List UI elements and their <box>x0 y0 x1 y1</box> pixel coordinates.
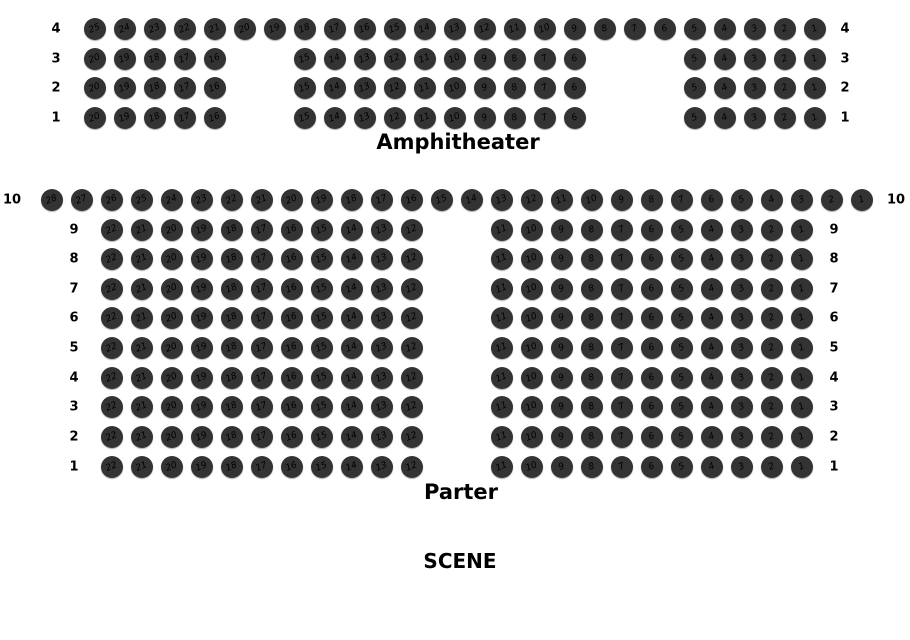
seat[interactable]: 4 <box>701 396 723 418</box>
seat[interactable]: 1 <box>804 77 826 99</box>
seat[interactable]: 3 <box>744 77 766 99</box>
seat[interactable]: 13 <box>354 48 376 70</box>
seat[interactable]: 4 <box>701 337 723 359</box>
seat[interactable]: 22 <box>101 219 123 241</box>
seat[interactable]: 20 <box>161 426 183 448</box>
seat[interactable]: 8 <box>581 367 603 389</box>
seat[interactable]: 7 <box>611 337 633 359</box>
seat[interactable]: 14 <box>341 456 363 478</box>
seat[interactable]: 14 <box>341 307 363 329</box>
seat[interactable]: 15 <box>311 307 333 329</box>
seat[interactable]: 4 <box>701 219 723 241</box>
seat[interactable]: 21 <box>131 367 153 389</box>
seat[interactable]: 6 <box>641 337 663 359</box>
seat[interactable]: 6 <box>641 278 663 300</box>
seat[interactable]: 17 <box>174 48 196 70</box>
seat[interactable]: 21 <box>251 189 273 211</box>
seat[interactable]: 17 <box>251 396 273 418</box>
seat[interactable]: 3 <box>744 18 766 40</box>
seat[interactable]: 13 <box>354 77 376 99</box>
seat[interactable]: 3 <box>731 426 753 448</box>
seat[interactable]: 20 <box>84 48 106 70</box>
seat[interactable]: 6 <box>564 107 586 129</box>
seat[interactable]: 9 <box>564 18 586 40</box>
seat[interactable]: 17 <box>251 456 273 478</box>
seat[interactable]: 22 <box>101 426 123 448</box>
seat[interactable]: 17 <box>251 219 273 241</box>
seat[interactable]: 10 <box>444 48 466 70</box>
seat[interactable]: 10 <box>521 278 543 300</box>
seat[interactable]: 1 <box>791 219 813 241</box>
seat[interactable]: 10 <box>444 107 466 129</box>
seat[interactable]: 7 <box>611 426 633 448</box>
seat[interactable]: 4 <box>701 248 723 270</box>
seat[interactable]: 21 <box>131 456 153 478</box>
seat[interactable]: 16 <box>281 219 303 241</box>
seat[interactable]: 11 <box>491 248 513 270</box>
seat[interactable]: 19 <box>191 248 213 270</box>
seat[interactable]: 16 <box>204 77 226 99</box>
seat[interactable]: 1 <box>791 396 813 418</box>
seat[interactable]: 24 <box>161 189 183 211</box>
seat[interactable]: 1 <box>791 278 813 300</box>
seat[interactable]: 8 <box>581 248 603 270</box>
seat[interactable]: 18 <box>221 248 243 270</box>
seat[interactable]: 4 <box>761 189 783 211</box>
seat[interactable]: 12 <box>384 107 406 129</box>
seat[interactable]: 10 <box>521 367 543 389</box>
seat[interactable]: 22 <box>101 456 123 478</box>
seat[interactable]: 11 <box>414 107 436 129</box>
seat[interactable]: 12 <box>401 219 423 241</box>
seat[interactable]: 20 <box>161 337 183 359</box>
seat[interactable]: 17 <box>371 189 393 211</box>
seat[interactable]: 16 <box>281 396 303 418</box>
seat[interactable]: 8 <box>581 456 603 478</box>
seat[interactable]: 15 <box>384 18 406 40</box>
seat[interactable]: 2 <box>774 48 796 70</box>
seat[interactable]: 9 <box>551 456 573 478</box>
seat[interactable]: 11 <box>491 307 513 329</box>
seat[interactable]: 5 <box>684 48 706 70</box>
seat[interactable]: 18 <box>221 396 243 418</box>
seat[interactable]: 12 <box>401 248 423 270</box>
seat[interactable]: 16 <box>281 456 303 478</box>
seat[interactable]: 3 <box>731 219 753 241</box>
seat[interactable]: 18 <box>221 219 243 241</box>
seat[interactable]: 13 <box>371 278 393 300</box>
seat[interactable]: 20 <box>84 77 106 99</box>
seat[interactable]: 13 <box>491 189 513 211</box>
seat[interactable]: 14 <box>341 248 363 270</box>
seat[interactable]: 2 <box>761 396 783 418</box>
seat[interactable]: 6 <box>641 396 663 418</box>
seat[interactable]: 18 <box>144 107 166 129</box>
seat[interactable]: 1 <box>851 189 873 211</box>
seat[interactable]: 19 <box>191 396 213 418</box>
seat[interactable]: 12 <box>401 278 423 300</box>
seat[interactable]: 14 <box>324 48 346 70</box>
seat[interactable]: 12 <box>384 48 406 70</box>
seat[interactable]: 22 <box>101 278 123 300</box>
seat[interactable]: 2 <box>774 77 796 99</box>
seat[interactable]: 11 <box>491 426 513 448</box>
seat[interactable]: 2 <box>774 18 796 40</box>
seat[interactable]: 7 <box>611 456 633 478</box>
seat[interactable]: 22 <box>174 18 196 40</box>
seat[interactable]: 16 <box>281 337 303 359</box>
seat[interactable]: 18 <box>221 278 243 300</box>
seat[interactable]: 6 <box>701 189 723 211</box>
seat[interactable]: 19 <box>191 337 213 359</box>
seat[interactable]: 17 <box>174 77 196 99</box>
seat[interactable]: 20 <box>161 367 183 389</box>
seat[interactable]: 9 <box>474 48 496 70</box>
seat[interactable]: 12 <box>401 337 423 359</box>
seat[interactable]: 3 <box>731 278 753 300</box>
seat[interactable]: 8 <box>581 278 603 300</box>
seat[interactable]: 15 <box>311 426 333 448</box>
seat[interactable]: 12 <box>401 456 423 478</box>
seat[interactable]: 16 <box>204 48 226 70</box>
seat[interactable]: 19 <box>191 307 213 329</box>
seat[interactable]: 7 <box>611 367 633 389</box>
seat[interactable]: 7 <box>611 219 633 241</box>
seat[interactable]: 15 <box>294 48 316 70</box>
seat[interactable]: 10 <box>521 337 543 359</box>
seat[interactable]: 1 <box>791 307 813 329</box>
seat[interactable]: 19 <box>311 189 333 211</box>
seat[interactable]: 11 <box>414 48 436 70</box>
seat[interactable]: 11 <box>491 367 513 389</box>
seat[interactable]: 5 <box>671 456 693 478</box>
seat[interactable]: 10 <box>521 248 543 270</box>
seat[interactable]: 5 <box>684 77 706 99</box>
seat[interactable]: 23 <box>191 189 213 211</box>
seat[interactable]: 2 <box>761 337 783 359</box>
seat[interactable]: 2 <box>761 367 783 389</box>
seat[interactable]: 6 <box>641 456 663 478</box>
seat[interactable]: 4 <box>701 426 723 448</box>
seat[interactable]: 13 <box>371 307 393 329</box>
seat[interactable]: 3 <box>731 307 753 329</box>
seat[interactable]: 2 <box>774 107 796 129</box>
seat[interactable]: 5 <box>671 248 693 270</box>
seat[interactable]: 3 <box>744 107 766 129</box>
seat[interactable]: 6 <box>641 307 663 329</box>
seat[interactable]: 4 <box>701 278 723 300</box>
seat[interactable]: 13 <box>444 18 466 40</box>
seat[interactable]: 8 <box>594 18 616 40</box>
seat[interactable]: 1 <box>791 337 813 359</box>
seat[interactable]: 15 <box>311 396 333 418</box>
seat[interactable]: 13 <box>371 426 393 448</box>
seat[interactable]: 14 <box>324 107 346 129</box>
seat[interactable]: 7 <box>534 77 556 99</box>
seat[interactable]: 5 <box>684 107 706 129</box>
seat[interactable]: 18 <box>221 307 243 329</box>
seat[interactable]: 21 <box>131 337 153 359</box>
seat[interactable]: 13 <box>371 456 393 478</box>
seat[interactable]: 18 <box>221 367 243 389</box>
seat[interactable]: 15 <box>311 367 333 389</box>
seat[interactable]: 21 <box>131 248 153 270</box>
seat[interactable]: 10 <box>521 307 543 329</box>
seat[interactable]: 14 <box>341 396 363 418</box>
seat[interactable]: 23 <box>144 18 166 40</box>
seat[interactable]: 1 <box>791 367 813 389</box>
seat[interactable]: 1 <box>791 426 813 448</box>
seat[interactable]: 4 <box>714 18 736 40</box>
seat[interactable]: 27 <box>71 189 93 211</box>
seat[interactable]: 9 <box>551 248 573 270</box>
seat[interactable]: 18 <box>221 456 243 478</box>
seat[interactable]: 6 <box>641 426 663 448</box>
seat[interactable]: 2 <box>761 456 783 478</box>
seat[interactable]: 9 <box>474 107 496 129</box>
seat[interactable]: 8 <box>581 337 603 359</box>
seat[interactable]: 3 <box>731 367 753 389</box>
seat[interactable]: 16 <box>281 426 303 448</box>
seat[interactable]: 10 <box>534 18 556 40</box>
seat[interactable]: 6 <box>564 77 586 99</box>
seat[interactable]: 4 <box>701 456 723 478</box>
seat[interactable]: 21 <box>131 396 153 418</box>
seat[interactable]: 21 <box>204 18 226 40</box>
seat[interactable]: 19 <box>191 278 213 300</box>
seat[interactable]: 8 <box>504 77 526 99</box>
seat[interactable]: 20 <box>84 107 106 129</box>
seat[interactable]: 13 <box>371 248 393 270</box>
seat[interactable]: 14 <box>341 278 363 300</box>
seat[interactable]: 11 <box>491 278 513 300</box>
seat[interactable]: 19 <box>191 426 213 448</box>
seat[interactable]: 10 <box>444 77 466 99</box>
seat[interactable]: 11 <box>414 77 436 99</box>
seat[interactable]: 6 <box>641 248 663 270</box>
seat[interactable]: 25 <box>84 18 106 40</box>
seat[interactable]: 14 <box>414 18 436 40</box>
seat[interactable]: 7 <box>671 189 693 211</box>
seat[interactable]: 11 <box>491 219 513 241</box>
seat[interactable]: 9 <box>551 219 573 241</box>
seat[interactable]: 4 <box>701 367 723 389</box>
seat[interactable]: 5 <box>671 307 693 329</box>
seat[interactable]: 6 <box>641 367 663 389</box>
seat[interactable]: 18 <box>221 426 243 448</box>
seat[interactable]: 12 <box>401 396 423 418</box>
seat[interactable]: 8 <box>504 107 526 129</box>
seat[interactable]: 11 <box>491 396 513 418</box>
seat[interactable]: 20 <box>161 219 183 241</box>
seat[interactable]: 22 <box>101 367 123 389</box>
seat[interactable]: 22 <box>221 189 243 211</box>
seat[interactable]: 19 <box>191 367 213 389</box>
seat[interactable]: 20 <box>234 18 256 40</box>
seat[interactable]: 16 <box>354 18 376 40</box>
seat[interactable]: 5 <box>671 219 693 241</box>
seat[interactable]: 17 <box>324 18 346 40</box>
seat[interactable]: 5 <box>684 18 706 40</box>
seat[interactable]: 11 <box>491 337 513 359</box>
seat[interactable]: 5 <box>671 367 693 389</box>
seat[interactable]: 15 <box>311 337 333 359</box>
seat[interactable]: 28 <box>41 189 63 211</box>
seat[interactable]: 21 <box>131 426 153 448</box>
seat[interactable]: 9 <box>551 337 573 359</box>
seat[interactable]: 4 <box>714 77 736 99</box>
seat[interactable]: 9 <box>551 426 573 448</box>
seat[interactable]: 9 <box>474 77 496 99</box>
seat[interactable]: 5 <box>671 396 693 418</box>
seat[interactable]: 4 <box>714 107 736 129</box>
seat[interactable]: 2 <box>821 189 843 211</box>
seat[interactable]: 2 <box>761 219 783 241</box>
seat[interactable]: 1 <box>791 456 813 478</box>
seat[interactable]: 19 <box>114 48 136 70</box>
seat[interactable]: 7 <box>611 307 633 329</box>
seat[interactable]: 24 <box>114 18 136 40</box>
seat[interactable]: 5 <box>671 337 693 359</box>
seat[interactable]: 9 <box>551 307 573 329</box>
seat[interactable]: 7 <box>534 107 556 129</box>
seat[interactable]: 9 <box>551 278 573 300</box>
seat[interactable]: 20 <box>161 278 183 300</box>
seat[interactable]: 13 <box>371 367 393 389</box>
seat[interactable]: 18 <box>294 18 316 40</box>
seat[interactable]: 1 <box>791 248 813 270</box>
seat[interactable]: 18 <box>144 77 166 99</box>
seat[interactable]: 11 <box>491 456 513 478</box>
seat[interactable]: 7 <box>611 248 633 270</box>
seat[interactable]: 18 <box>221 337 243 359</box>
seat[interactable]: 4 <box>701 307 723 329</box>
seat[interactable]: 22 <box>101 396 123 418</box>
seat[interactable]: 12 <box>474 18 496 40</box>
seat[interactable]: 15 <box>311 219 333 241</box>
seat[interactable]: 15 <box>311 456 333 478</box>
seat[interactable]: 1 <box>804 48 826 70</box>
seat[interactable]: 9 <box>611 189 633 211</box>
seat[interactable]: 22 <box>101 307 123 329</box>
seat[interactable]: 10 <box>521 426 543 448</box>
seat[interactable]: 2 <box>761 426 783 448</box>
seat[interactable]: 13 <box>354 107 376 129</box>
seat[interactable]: 8 <box>641 189 663 211</box>
seat[interactable]: 3 <box>731 456 753 478</box>
seat[interactable]: 12 <box>521 189 543 211</box>
seat[interactable]: 21 <box>131 219 153 241</box>
seat[interactable]: 8 <box>581 219 603 241</box>
seat[interactable]: 10 <box>521 396 543 418</box>
seat[interactable]: 9 <box>551 367 573 389</box>
seat[interactable]: 12 <box>401 426 423 448</box>
seat[interactable]: 3 <box>731 396 753 418</box>
seat[interactable]: 2 <box>761 278 783 300</box>
seat[interactable]: 21 <box>131 307 153 329</box>
seat[interactable]: 20 <box>161 248 183 270</box>
seat[interactable]: 17 <box>251 367 273 389</box>
seat[interactable]: 14 <box>341 426 363 448</box>
seat[interactable]: 2 <box>761 307 783 329</box>
seat[interactable]: 6 <box>564 48 586 70</box>
seat[interactable]: 4 <box>714 48 736 70</box>
seat[interactable]: 15 <box>294 77 316 99</box>
seat[interactable]: 3 <box>744 48 766 70</box>
seat[interactable]: 13 <box>371 337 393 359</box>
seat[interactable]: 3 <box>731 337 753 359</box>
seat[interactable]: 1 <box>804 107 826 129</box>
seat[interactable]: 8 <box>581 426 603 448</box>
seat[interactable]: 16 <box>281 367 303 389</box>
seat[interactable]: 10 <box>581 189 603 211</box>
seat[interactable]: 17 <box>251 248 273 270</box>
seat[interactable]: 22 <box>101 337 123 359</box>
seat[interactable]: 14 <box>341 219 363 241</box>
seat[interactable]: 12 <box>384 77 406 99</box>
seat[interactable]: 19 <box>191 456 213 478</box>
seat[interactable]: 6 <box>654 18 676 40</box>
seat[interactable]: 12 <box>401 367 423 389</box>
seat[interactable]: 17 <box>174 107 196 129</box>
seat[interactable]: 19 <box>114 77 136 99</box>
seat[interactable]: 8 <box>581 307 603 329</box>
seat[interactable]: 16 <box>204 107 226 129</box>
seat[interactable]: 6 <box>641 219 663 241</box>
seat[interactable]: 16 <box>401 189 423 211</box>
seat[interactable]: 8 <box>504 48 526 70</box>
seat[interactable]: 22 <box>101 248 123 270</box>
seat[interactable]: 17 <box>251 278 273 300</box>
seat[interactable]: 16 <box>281 307 303 329</box>
seat[interactable]: 14 <box>341 367 363 389</box>
seat[interactable]: 18 <box>144 48 166 70</box>
seat[interactable]: 14 <box>341 337 363 359</box>
seat[interactable]: 11 <box>551 189 573 211</box>
seat[interactable]: 1 <box>804 18 826 40</box>
seat[interactable]: 15 <box>431 189 453 211</box>
seat[interactable]: 14 <box>461 189 483 211</box>
seat[interactable]: 20 <box>161 307 183 329</box>
seat[interactable]: 13 <box>371 219 393 241</box>
seat[interactable]: 16 <box>281 278 303 300</box>
seat[interactable]: 3 <box>731 248 753 270</box>
seat[interactable]: 17 <box>251 337 273 359</box>
seat[interactable]: 10 <box>521 219 543 241</box>
seat[interactable]: 3 <box>791 189 813 211</box>
seat[interactable]: 7 <box>534 48 556 70</box>
seat[interactable]: 18 <box>341 189 363 211</box>
seat[interactable]: 15 <box>311 278 333 300</box>
seat[interactable]: 5 <box>671 426 693 448</box>
seat[interactable]: 5 <box>731 189 753 211</box>
seat[interactable]: 16 <box>281 248 303 270</box>
seat[interactable]: 19 <box>264 18 286 40</box>
seat[interactable]: 11 <box>504 18 526 40</box>
seat[interactable]: 25 <box>131 189 153 211</box>
seat[interactable]: 5 <box>671 278 693 300</box>
seat[interactable]: 20 <box>281 189 303 211</box>
seat[interactable]: 7 <box>611 278 633 300</box>
seat[interactable]: 15 <box>294 107 316 129</box>
seat[interactable]: 7 <box>611 396 633 418</box>
seat[interactable]: 26 <box>101 189 123 211</box>
seat[interactable]: 14 <box>324 77 346 99</box>
seat[interactable]: 8 <box>581 396 603 418</box>
seat[interactable]: 19 <box>191 219 213 241</box>
seat[interactable]: 20 <box>161 456 183 478</box>
seat[interactable]: 21 <box>131 278 153 300</box>
